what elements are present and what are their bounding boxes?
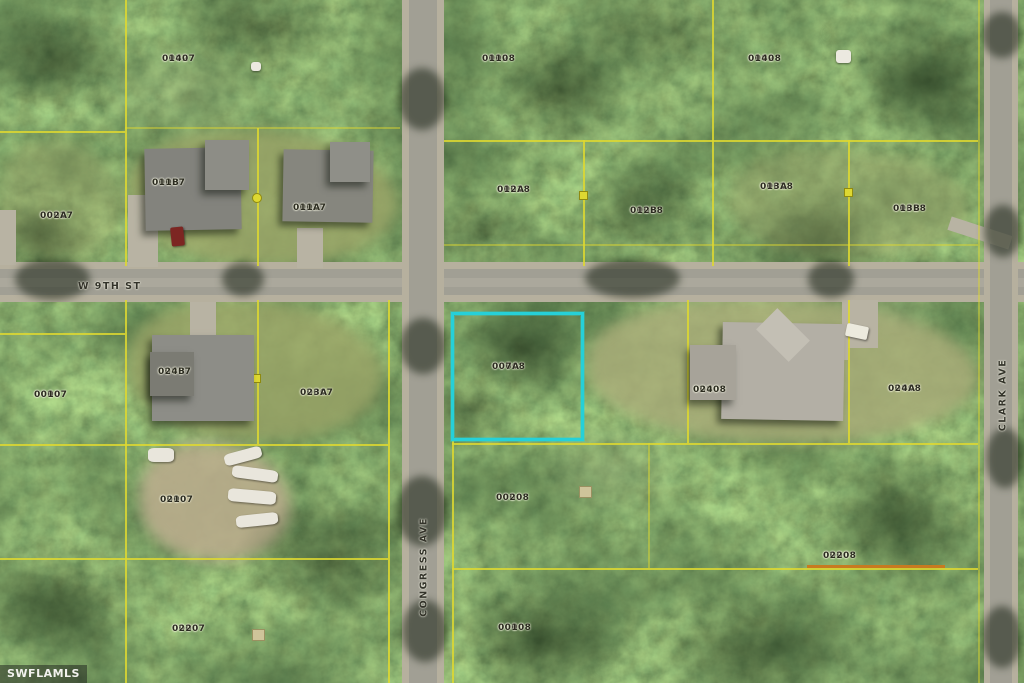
parcel-line [848,140,850,266]
parcel-line [0,444,388,446]
lot-number: 013B [893,204,920,214]
street-label-w9th: W 9TH ST [78,281,141,292]
mls-watermark: SWFLAMLS [0,665,87,683]
street-label-clark: CLARK AVE [998,359,1009,431]
lot-number: 011B [152,178,179,188]
lot-number: 024A [888,384,915,394]
lot-number: 012A [497,185,524,195]
lot-number: 0020 [496,493,523,503]
parcel-line [452,441,454,683]
lot-number: 0140 [162,54,189,64]
parcel-line [978,0,980,683]
driveway [297,228,323,268]
parcel-line [687,300,689,443]
parcel-line [125,300,127,683]
lot-number: 0010 [498,623,525,633]
lot-number: 011A [293,203,320,213]
white-structure [251,62,261,71]
trailer [148,448,174,462]
red-car [170,226,185,246]
parcel-line [583,140,585,266]
parcel-line [444,244,978,246]
parcel-line [125,127,400,129]
lot-number: 024B [158,367,185,377]
tree-shadow [222,262,264,296]
parcel-line [0,333,125,335]
parcel-line [0,558,388,560]
lot-number: 0010 [34,390,61,400]
tree-shadow [986,428,1024,488]
parcel-line [452,443,978,445]
lot-number: 002A [40,211,67,221]
tree-shadow [982,12,1022,58]
parcel-line [257,300,259,444]
survey-marker [252,193,262,203]
parcel-line [848,300,850,443]
lot-number: 012B [630,206,657,216]
driveway [190,302,216,338]
lot-number: 0210 [160,495,187,505]
driveway [0,210,16,265]
lot-number: 023A [300,388,327,398]
tree-shadow [398,68,446,130]
tree-shadow [400,318,446,374]
tree-shadow [984,205,1022,257]
lot-number: 0240 [693,385,720,395]
parcel-line [444,140,978,142]
survey-marker [844,188,853,197]
road-clark-surface [990,0,1012,683]
lot-number: 007A [492,362,519,372]
shed [579,486,592,498]
lot-number: 013A [760,182,787,192]
house-roof-wing [330,142,370,182]
tree-shadow [15,258,90,300]
tree-shadow [585,258,680,298]
lot-number: 0140 [748,54,775,64]
lot-number: 0110 [482,54,509,64]
shed [252,629,265,641]
lot-number: 0220 [172,624,199,634]
parcel-line [648,443,650,568]
parcel-line [452,568,978,570]
tree-shadow [982,606,1022,668]
parcel-line [712,0,714,266]
highlighted-parcel [451,312,584,441]
accent-boundary-line [807,565,945,568]
survey-marker [579,191,588,200]
house-roof-wing [205,140,249,190]
road-w9th-wear [0,278,1024,287]
street-label-congress: CONGRESS AVE [419,517,430,617]
aerial-parcel-map: 000270140 000280110 000280140 00027011B … [0,0,1024,683]
lot-number: 0220 [823,551,850,561]
parcel-line [125,0,127,266]
parcel-line [388,300,390,683]
white-structure [836,50,851,63]
parcel-line [0,131,125,133]
